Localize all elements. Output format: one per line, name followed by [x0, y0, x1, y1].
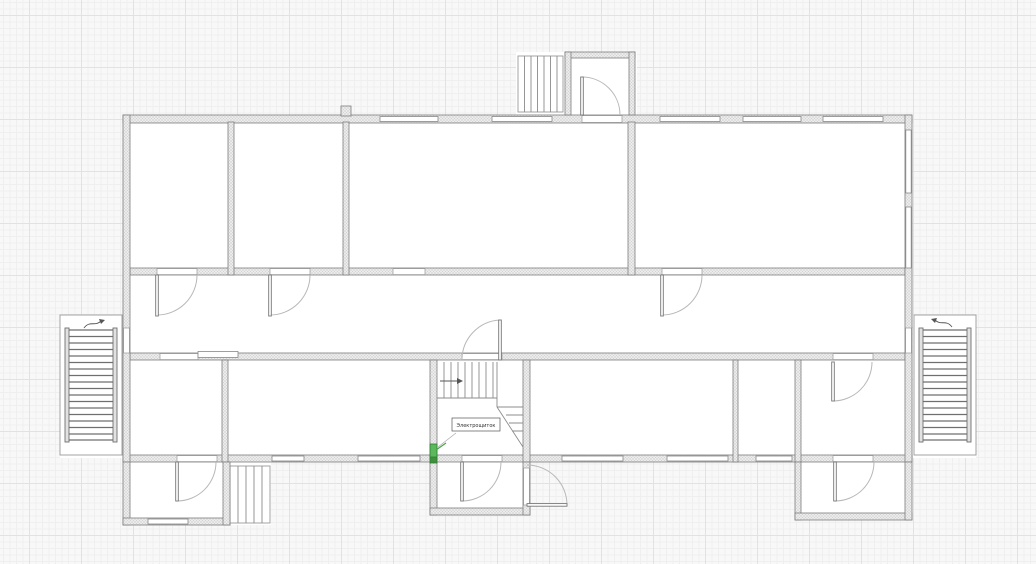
door-leaf [461, 462, 464, 501]
wall-top-divider-2[interactable] [343, 122, 349, 275]
window-left-annex[interactable] [148, 519, 188, 524]
door-leaf [832, 362, 835, 401]
doorway-room3-corridor[interactable] [393, 269, 425, 275]
door-leaf [269, 275, 272, 316]
selected-element-base[interactable] [430, 457, 437, 463]
wall-porch-left[interactable] [430, 462, 437, 515]
door-leaf [661, 275, 664, 316]
window-top-4[interactable] [743, 117, 801, 122]
door-exterior-east[interactable] [527, 465, 567, 506]
wall-vestibule-left[interactable] [565, 52, 571, 115]
doorway-porch[interactable] [462, 456, 502, 462]
doorway-right-stair-landing[interactable] [906, 328, 912, 353]
doorway-right-annex[interactable] [833, 456, 873, 462]
window-bottom-4[interactable] [667, 456, 728, 461]
doorway-bottom-room1[interactable] [160, 354, 198, 360]
window-right-1[interactable] [906, 130, 911, 193]
main-building-floor [123, 115, 912, 462]
wall-corridor-bottom[interactable] [130, 353, 905, 360]
wall-bottom-divider-1[interactable] [222, 360, 228, 462]
wall-right-annex-left[interactable] [795, 462, 801, 520]
door-leaf [581, 77, 584, 115]
doorway-left-stair-landing[interactable] [124, 328, 130, 353]
door-leaf [156, 275, 159, 316]
window-top-2[interactable] [492, 117, 552, 122]
wall-right-annex-bottom[interactable] [795, 513, 912, 520]
doorway-bottom-right-room[interactable] [833, 354, 873, 360]
wall-right-annex-right[interactable] [905, 462, 912, 520]
door-leaf [834, 462, 837, 501]
wall-porch-bottom[interactable] [430, 508, 530, 515]
wall-left-annex-right[interactable] [223, 462, 230, 525]
window-bottom-3[interactable] [562, 456, 623, 461]
left-annex-floor [123, 462, 271, 525]
window-top-3[interactable] [660, 117, 720, 122]
wall-vestibule-right[interactable] [629, 52, 635, 115]
doorway-hall-corridor[interactable] [662, 269, 702, 275]
wall-vestibule-top[interactable] [565, 52, 635, 58]
window-bottom-2[interactable] [358, 456, 420, 461]
wall-exterior-left[interactable] [123, 115, 130, 462]
wall-top-divider-3[interactable] [628, 122, 635, 275]
doorway-left-annex[interactable] [177, 456, 217, 462]
doorway-porch-east[interactable] [524, 468, 530, 505]
door-leaf [499, 320, 502, 360]
porch-floor [430, 462, 530, 515]
window-corridor-sill[interactable] [198, 352, 238, 358]
wall-left-annex-left[interactable] [123, 462, 130, 525]
wall-stairwell-right[interactable] [523, 360, 530, 462]
doorway-room2-corridor[interactable] [270, 269, 310, 275]
wall-exterior-bottom[interactable] [123, 455, 912, 462]
window-right-2[interactable] [906, 207, 911, 268]
door-leaf [176, 462, 179, 501]
window-top-5[interactable] [823, 117, 883, 122]
window-bottom-1[interactable] [272, 456, 304, 461]
door-leaf [527, 504, 567, 507]
right-annex-floor [795, 462, 912, 520]
doorway-room1-corridor[interactable] [157, 269, 197, 275]
pilaster[interactable] [341, 106, 351, 116]
window-bottom-5[interactable] [756, 456, 792, 461]
wall-corridor-top[interactable] [130, 268, 905, 275]
label-text: Электрощиток [457, 423, 496, 429]
wall-bottom-divider-2[interactable] [733, 360, 738, 462]
window-top-1[interactable] [380, 117, 438, 122]
doorway-vestibule[interactable] [582, 116, 622, 123]
floor-plan-canvas[interactable]: Электрощиток [0, 0, 1036, 564]
doorway-stairwell-corridor[interactable] [462, 354, 502, 360]
wall-top-divider-1[interactable] [228, 122, 234, 275]
wall-bottom-divider-3[interactable] [795, 360, 801, 462]
